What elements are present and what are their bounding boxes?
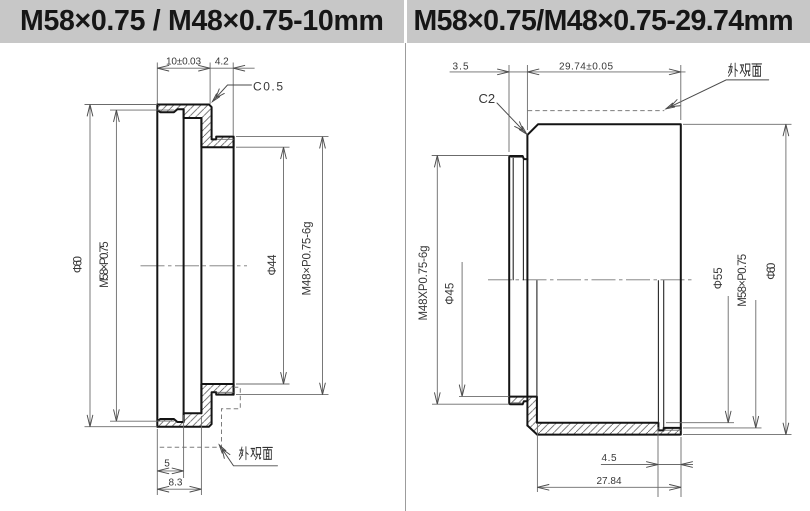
svg-text:M48×P0.75-6g: M48×P0.75-6g [302, 222, 314, 296]
svg-text:M48XP0.75-6g: M48XP0.75-6g [418, 246, 430, 321]
svg-text:5: 5 [164, 459, 170, 470]
svg-text:C0.5: C0.5 [253, 80, 283, 94]
svg-text:3.5: 3.5 [453, 61, 469, 72]
svg-text:Φ44: Φ44 [267, 254, 279, 276]
svg-text:Φ45: Φ45 [445, 283, 457, 305]
svg-text:8.3: 8.3 [169, 478, 183, 489]
svg-text:Φ60: Φ60 [73, 256, 85, 273]
svg-text:10±0.03: 10±0.03 [166, 57, 201, 68]
svg-text:4.5: 4.5 [602, 453, 617, 464]
svg-text:M58×P0.75: M58×P0.75 [99, 241, 111, 288]
svg-text:29.74±0.05: 29.74±0.05 [559, 61, 613, 72]
svg-text:27.84: 27.84 [596, 476, 621, 487]
svg-text:Φ55: Φ55 [713, 267, 725, 289]
svg-text:C2: C2 [479, 91, 496, 106]
svg-text:Φ60: Φ60 [766, 263, 778, 280]
svg-text:M58×P0.75: M58×P0.75 [737, 254, 749, 307]
svg-text:4.2: 4.2 [215, 57, 229, 68]
